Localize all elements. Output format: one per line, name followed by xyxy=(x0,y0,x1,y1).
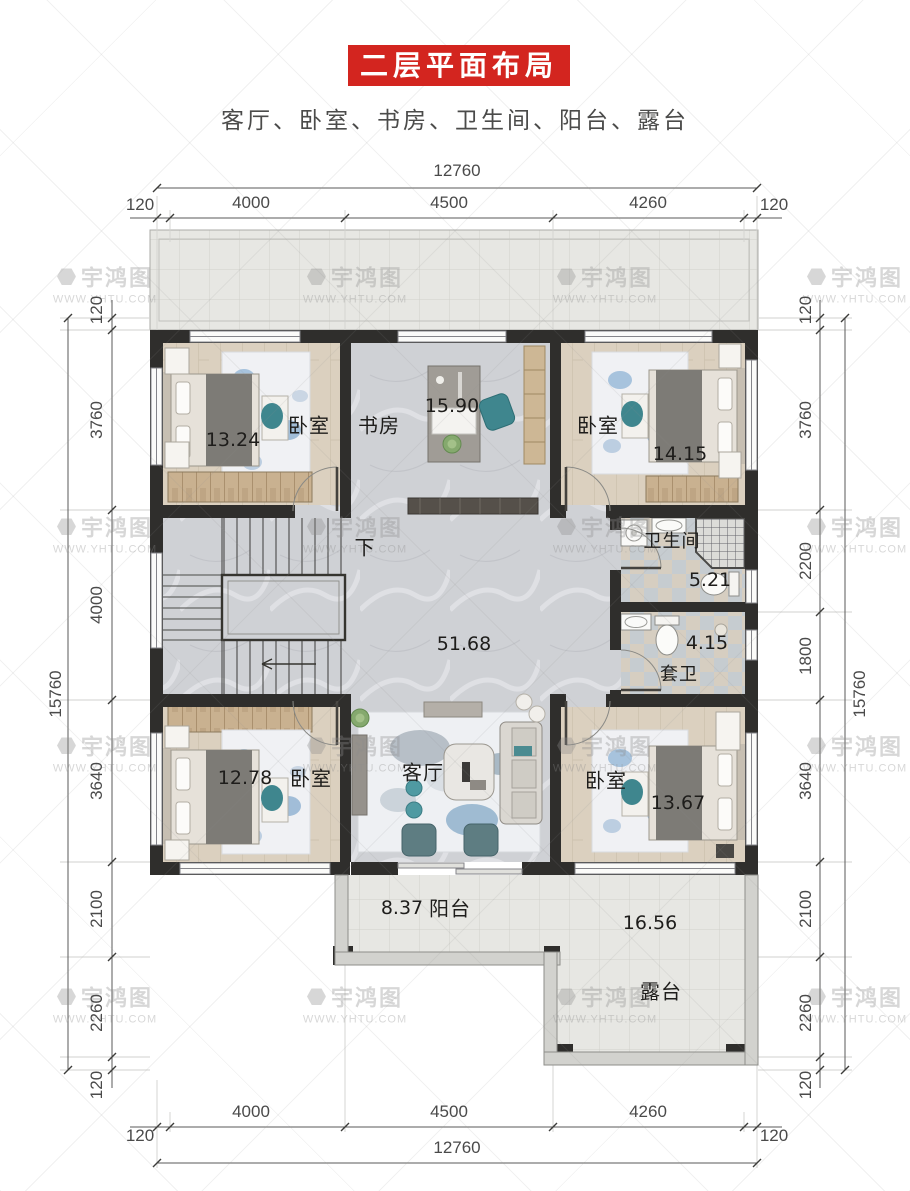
dim-top-seg1: 4000 xyxy=(232,193,270,213)
bed-headboard xyxy=(737,744,745,840)
dim-right-total: 15760 xyxy=(850,670,870,717)
dim-right-seg5: 2100 xyxy=(796,890,816,928)
sofa-pillow xyxy=(514,746,532,756)
label-balcony: 阳台 xyxy=(429,893,471,922)
dim-left-seg4: 2100 xyxy=(87,890,107,928)
area-hall: 51.68 xyxy=(437,633,491,655)
dim-right-seg1: 3760 xyxy=(796,401,816,439)
sliding-door xyxy=(398,863,522,874)
dim-left-seg5: 2260 xyxy=(87,994,107,1032)
dim-bottom-seg0: 120 xyxy=(126,1126,154,1146)
label-stairs-down: 下 xyxy=(355,532,376,561)
stool xyxy=(529,706,545,722)
pillow xyxy=(718,754,732,786)
area-ensuite: 4.15 xyxy=(686,632,728,654)
nightstand xyxy=(165,840,189,860)
armchair xyxy=(464,824,498,856)
dim-top-seg2: 4500 xyxy=(430,193,468,213)
dim-bottom-seg2: 4500 xyxy=(430,1102,468,1122)
dim-bottom-seg4: 120 xyxy=(760,1126,788,1146)
console-table xyxy=(408,498,538,514)
subtitle: 客厅、卧室、书房、卫生间、阳台、露台 xyxy=(0,101,910,135)
pillow xyxy=(718,798,732,830)
label-bedroom-tl: 卧室 xyxy=(288,410,330,439)
cabinet xyxy=(716,844,734,858)
area-bedroom-tr: 14.15 xyxy=(653,443,707,465)
area-bedroom-tl: 13.24 xyxy=(206,429,260,451)
nightstand xyxy=(165,726,189,748)
dim-left-seg3: 3640 xyxy=(87,762,107,800)
dim-right-seg0: 120 xyxy=(796,296,816,324)
living-furniture xyxy=(351,694,545,856)
dim-top-seg0: 120 xyxy=(126,195,154,215)
dim-top-seg4: 120 xyxy=(760,195,788,215)
dim-top-seg3: 4260 xyxy=(629,193,667,213)
dim-left-total: 15760 xyxy=(46,670,66,717)
area-bathroom: 5.21 xyxy=(689,569,731,591)
side-table xyxy=(406,802,422,818)
dim-right-seg2: 2200 xyxy=(796,542,816,580)
pillow xyxy=(176,758,190,790)
wardrobe xyxy=(168,472,312,502)
blanket xyxy=(206,374,252,466)
hall-console xyxy=(352,735,367,815)
label-bedroom-bl: 卧室 xyxy=(290,763,332,792)
blanket xyxy=(206,750,252,844)
dim-right-seg4: 3640 xyxy=(796,762,816,800)
page-title: 二层平面布局图 xyxy=(348,45,570,86)
nightstand xyxy=(165,442,189,468)
label-terrace: 露台 xyxy=(640,976,682,1005)
nightstand xyxy=(716,712,740,750)
dim-bottom-total: 12760 xyxy=(433,1138,480,1158)
dim-bottom-seg1: 4000 xyxy=(232,1102,270,1122)
floor-terrace xyxy=(557,875,745,1052)
throw xyxy=(621,401,643,427)
dim-left-seg1: 3760 xyxy=(87,401,107,439)
dim-left-seg6: 120 xyxy=(87,1071,107,1099)
area-terrace: 16.56 xyxy=(623,912,677,934)
nightstand xyxy=(165,348,189,374)
label-bedroom-tr: 卧室 xyxy=(577,410,619,439)
wardrobe xyxy=(168,704,312,732)
bed-headboard xyxy=(737,368,745,464)
dim-bottom-seg3: 4260 xyxy=(629,1102,667,1122)
floor-plan-sheet: 宇鸿图WWW.YHTU.COM 宇鸿图WWW.YHTU.COM 宇鸿图WWW.Y… xyxy=(0,0,910,1191)
tv-bench xyxy=(424,702,482,717)
area-study: 15.90 xyxy=(425,395,479,417)
dim-left-seg2: 4000 xyxy=(87,586,107,624)
pillow xyxy=(176,802,190,834)
armchair xyxy=(402,824,436,856)
wardrobe xyxy=(646,476,738,502)
area-bedroom-br: 13.67 xyxy=(651,792,705,814)
pillow xyxy=(176,382,190,414)
pillow xyxy=(718,378,732,410)
dim-top-total: 12760 xyxy=(433,161,480,181)
dim-right-seg6: 2260 xyxy=(796,994,816,1032)
bookshelf xyxy=(524,346,545,464)
pillow xyxy=(718,422,732,454)
label-bedroom-br: 卧室 xyxy=(585,765,627,794)
nightstand xyxy=(719,452,741,478)
dim-right-seg7: 120 xyxy=(796,1071,816,1099)
label-study: 书房 xyxy=(358,410,400,439)
area-bedroom-bl: 12.78 xyxy=(218,767,272,789)
label-ensuite: 套卫 xyxy=(660,660,698,686)
area-balcony: 8.37 xyxy=(381,897,423,919)
throw xyxy=(261,403,283,429)
nightstand xyxy=(719,344,741,368)
shower xyxy=(696,518,745,568)
bed-headboard xyxy=(163,748,171,844)
toilet-tank xyxy=(655,616,679,625)
toilet xyxy=(656,625,678,655)
label-bathroom: 卫生间 xyxy=(644,527,701,553)
stool xyxy=(516,694,532,710)
dim-left-seg0: 120 xyxy=(87,296,107,324)
label-living: 客厅 xyxy=(402,757,444,786)
dim-right-seg3: 1800 xyxy=(796,637,816,675)
